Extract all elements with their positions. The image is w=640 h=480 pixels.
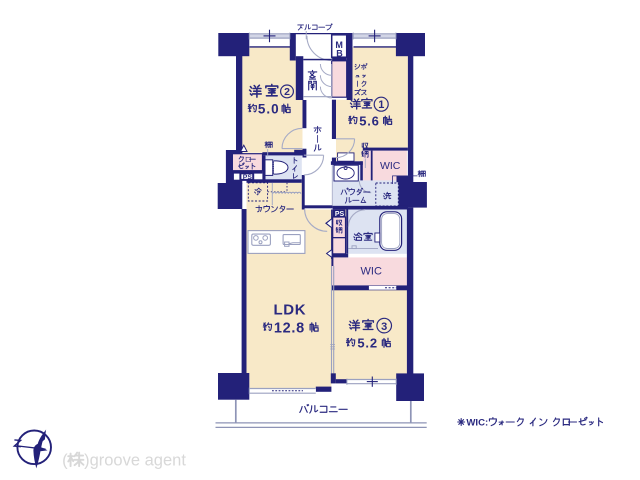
svg-text:PS: PS [243,174,253,181]
svg-text:B: B [336,48,343,58]
svg-text:(: ( [62,451,68,469]
svg-text:ロ: ロ [562,417,572,428]
svg-text:ロ: ロ [245,157,252,164]
svg-text:5.0: 5.0 [258,102,280,117]
svg-text:12.8: 12.8 [274,320,305,336]
svg-text:2: 2 [284,86,290,98]
svg-text:5.6: 5.6 [359,113,379,128]
svg-text:WIC:: WIC: [466,417,488,428]
svg-text:5.2: 5.2 [357,336,377,351]
svg-text:WIC: WIC [361,266,382,278]
svg-text:1: 1 [378,99,384,111]
svg-text:LDK: LDK [274,301,307,318]
svg-text:WIC: WIC [380,160,401,172]
svg-text:)groove agent: )groove agent [84,451,186,469]
svg-text:3: 3 [381,321,387,333]
